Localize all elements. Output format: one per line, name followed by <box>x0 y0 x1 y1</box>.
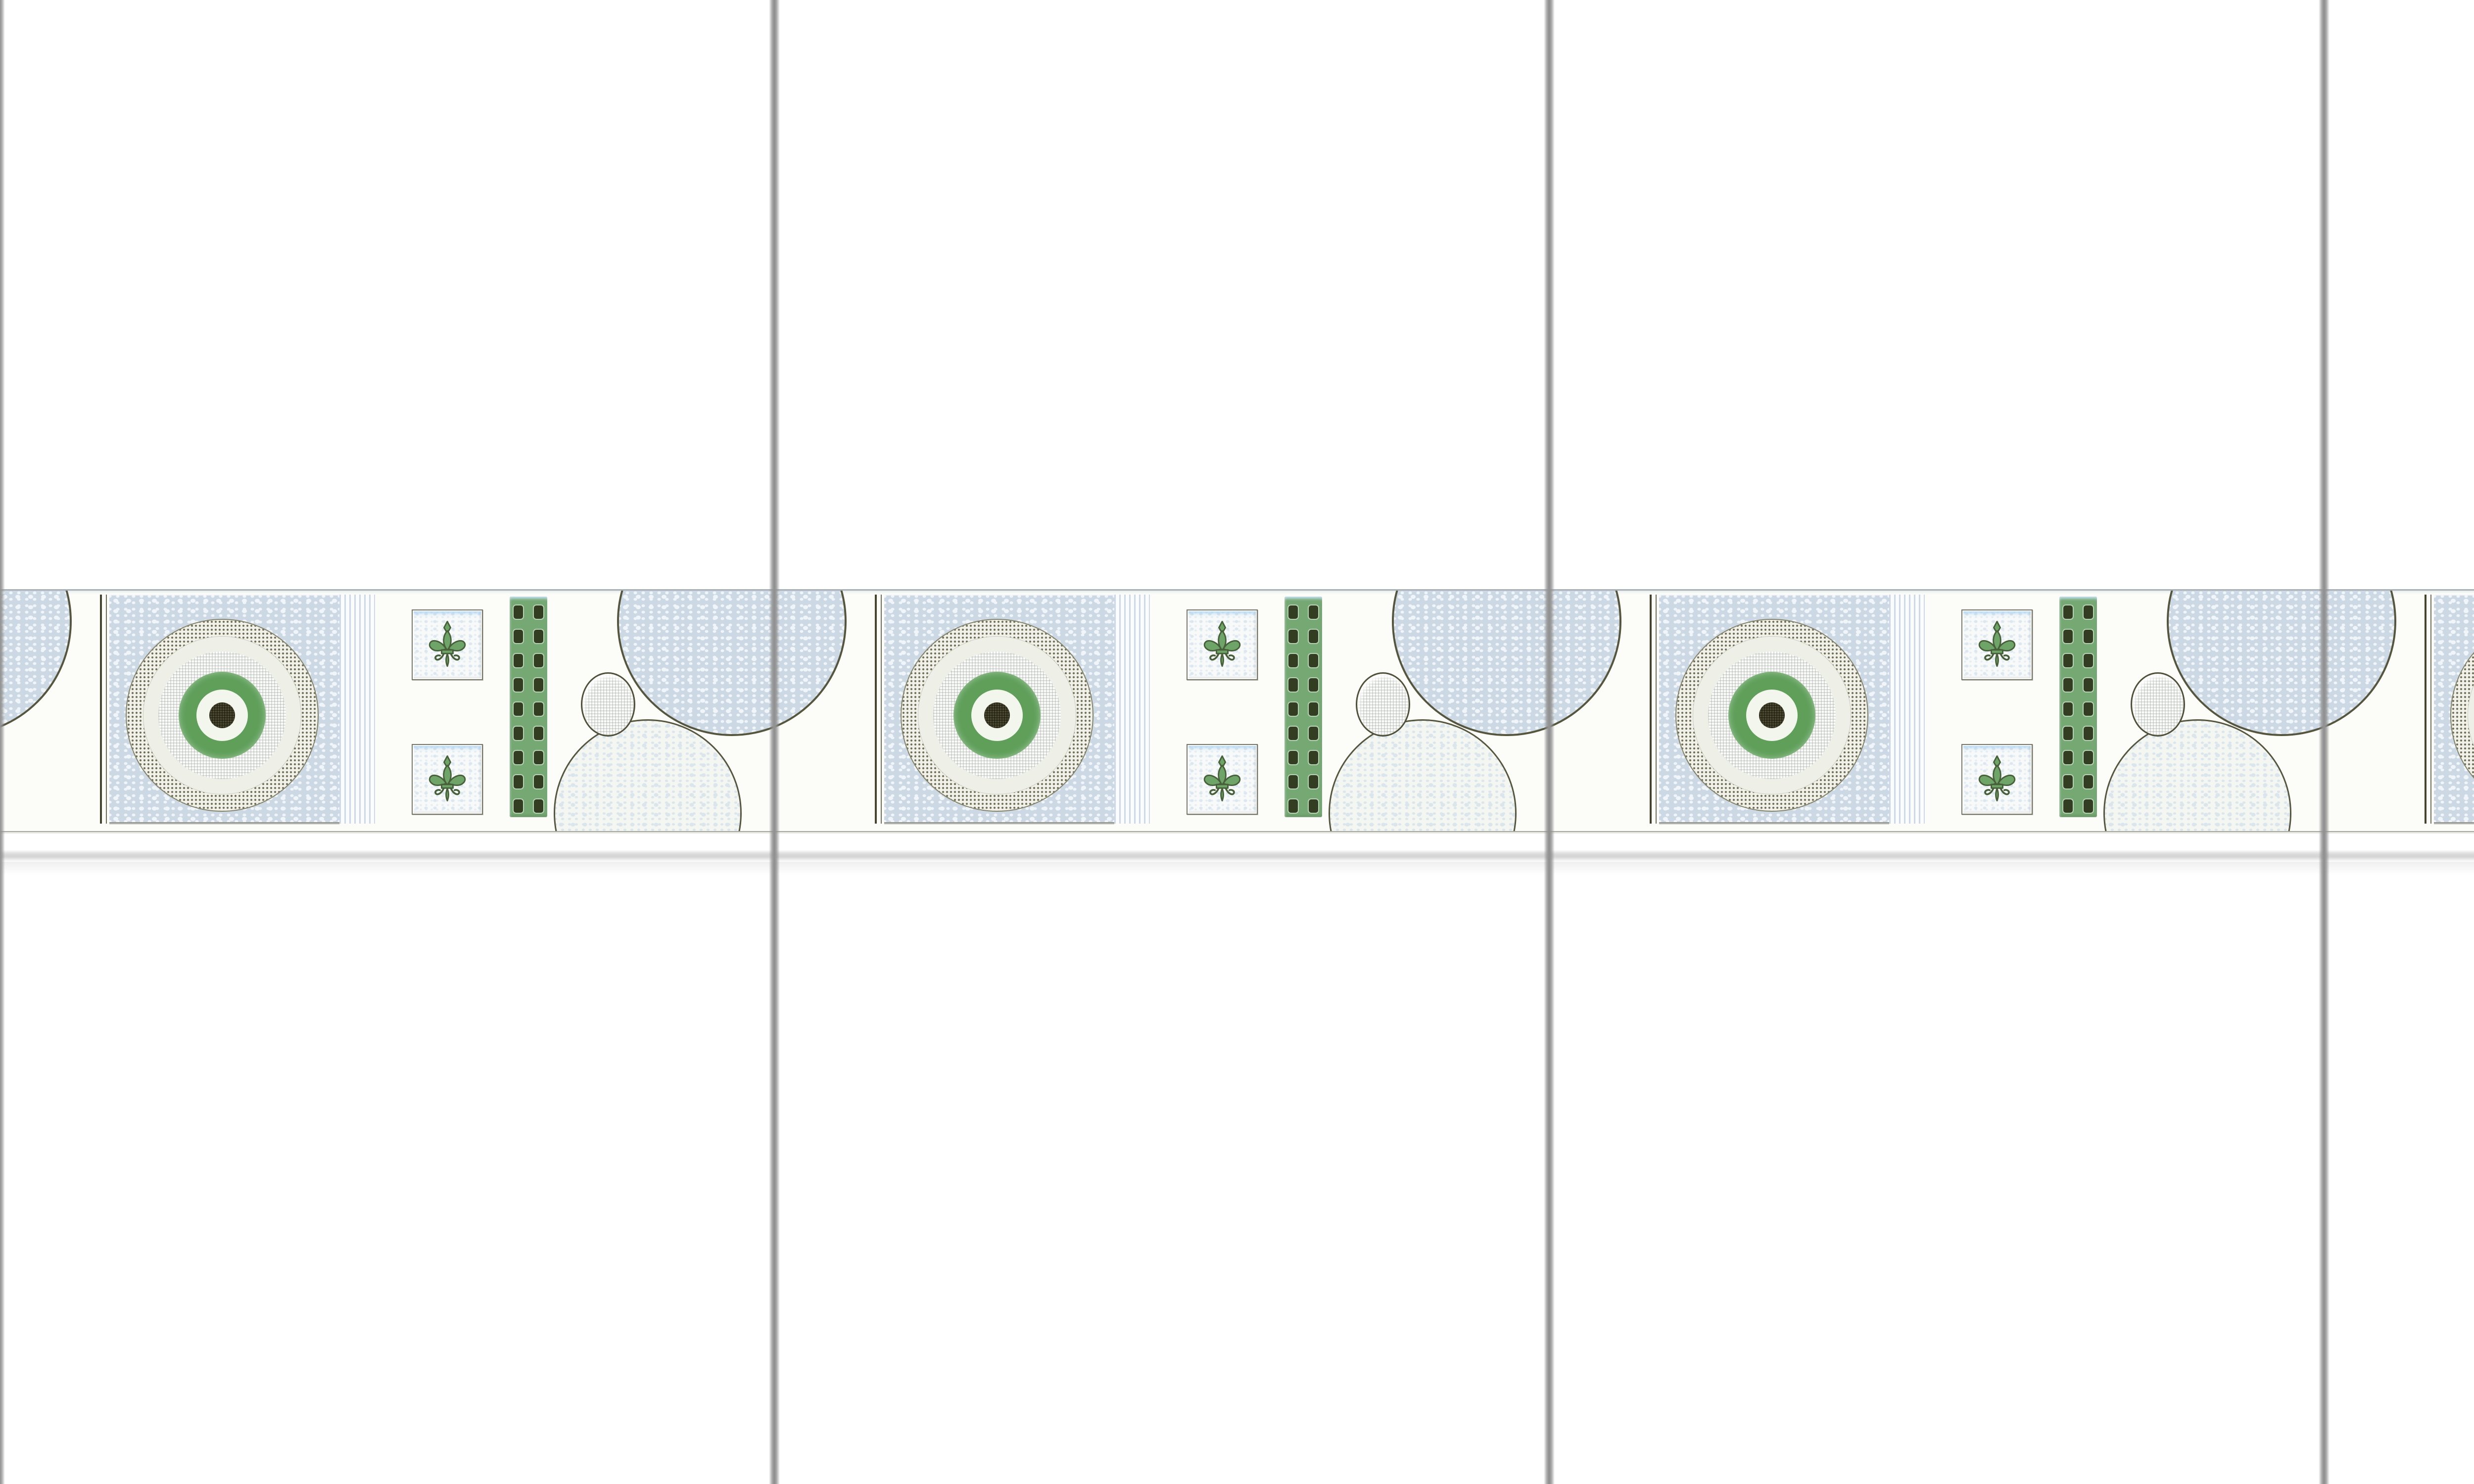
bar-dash <box>534 678 543 692</box>
big-blue-circle <box>2167 591 2324 736</box>
bar-dash <box>514 775 523 788</box>
pinstripe-block <box>1889 595 1925 824</box>
bar-dash <box>2063 799 2073 813</box>
bar-dash <box>1288 799 1298 813</box>
bar-dash <box>534 751 543 764</box>
double-pinline-light <box>2430 595 2431 824</box>
bar-dash <box>1288 702 1298 716</box>
grout-line-vertical <box>1544 0 1555 1484</box>
grout-line-vertical <box>2319 0 2330 1484</box>
bar-dash <box>534 654 543 667</box>
bar-dash <box>514 630 523 643</box>
fleur-de-lis-icon <box>427 755 468 804</box>
border-cell <box>774 591 1549 831</box>
fleur-de-lis-icon <box>1202 620 1242 670</box>
bar-dash <box>2063 678 2073 692</box>
double-pinline-dark <box>1650 595 1652 824</box>
fleur-tile <box>412 744 483 815</box>
blue-circle-sliver <box>774 591 847 736</box>
bar-dash <box>2063 654 2073 667</box>
bar-dash <box>1309 702 1318 716</box>
grout-line-vertical <box>0 0 5 1484</box>
white-texture-circle <box>554 719 742 831</box>
small-halftone-circle <box>2131 672 2185 737</box>
bar-dash <box>1309 727 1318 740</box>
border-cell <box>2324 591 2474 831</box>
grout-line-horizontal <box>0 850 2474 862</box>
bar-dash <box>2063 775 2073 788</box>
bar-dash <box>2063 605 2073 619</box>
bar-dash <box>2084 727 2093 740</box>
fleur-tile <box>1961 609 2033 680</box>
bar-dash <box>514 702 523 716</box>
bar-dash <box>2084 775 2093 788</box>
bar-dash <box>2063 702 2073 716</box>
fleur-de-lis-icon <box>1977 755 2017 804</box>
double-pinline-dark <box>875 595 877 824</box>
grout-line-vertical <box>769 0 780 1484</box>
fleur-de-lis-icon <box>1977 620 2017 670</box>
target-plate-motif <box>126 619 319 812</box>
target-plate-motif <box>901 619 1094 812</box>
fleur-de-lis-icon <box>427 620 468 670</box>
white-texture-circle <box>2103 719 2291 831</box>
bar-dash <box>2084 702 2093 716</box>
green-dash-bar <box>510 597 547 817</box>
bar-dash <box>534 727 543 740</box>
small-halftone-circle <box>1356 672 1410 737</box>
green-dash-bar <box>2059 597 2097 817</box>
double-pinline-light <box>1656 595 1657 824</box>
blue-circle-sliver <box>1549 591 1621 736</box>
white-texture-circle <box>1329 719 1517 831</box>
bar-dash <box>2084 605 2093 619</box>
bar-dash <box>2063 630 2073 643</box>
blue-circle-sliver <box>2324 591 2396 736</box>
bar-dash <box>514 654 523 667</box>
bar-dash <box>1288 727 1298 740</box>
fleur-tile <box>412 609 483 680</box>
bar-dash <box>1309 751 1318 764</box>
double-pinline-dark <box>2425 595 2426 824</box>
plate-center-dot <box>209 702 235 728</box>
bar-dash <box>1309 678 1318 692</box>
bar-dash <box>1309 799 1318 813</box>
bar-dash <box>1288 678 1298 692</box>
bar-dash <box>1309 775 1318 788</box>
small-halftone-circle <box>581 672 635 737</box>
border-cell <box>0 591 774 831</box>
bar-dash <box>1288 751 1298 764</box>
bar-dash <box>1288 654 1298 667</box>
bar-dash <box>514 605 523 619</box>
bar-dash <box>534 630 543 643</box>
bar-dash <box>2084 654 2093 667</box>
tiled-wall <box>0 0 2474 1484</box>
bar-dash <box>2084 630 2093 643</box>
pinstripe-block <box>1114 595 1150 824</box>
pinstripe-block <box>339 595 375 824</box>
bar-dash <box>534 799 543 813</box>
fleur-de-lis-icon <box>1202 755 1242 804</box>
target-plate-motif <box>2450 619 2474 812</box>
double-pinline-light <box>106 595 107 824</box>
bar-dash <box>514 678 523 692</box>
bar-dash <box>514 727 523 740</box>
bar-dash <box>514 751 523 764</box>
bar-dash <box>534 605 543 619</box>
bar-dash <box>514 799 523 813</box>
bar-dash <box>2063 727 2073 740</box>
bar-dash <box>1288 775 1298 788</box>
bar-dash <box>534 702 543 716</box>
bar-dash <box>1309 605 1318 619</box>
bar-dash <box>1309 630 1318 643</box>
bar-dash <box>534 775 543 788</box>
fleur-tile <box>1961 744 2033 815</box>
double-pinline-light <box>881 595 882 824</box>
bar-dash <box>2084 799 2093 813</box>
fleur-tile <box>1187 744 1258 815</box>
bar-dash <box>2084 751 2093 764</box>
big-blue-circle <box>617 591 774 736</box>
target-plate-motif <box>1675 619 1868 812</box>
fleur-tile <box>1187 609 1258 680</box>
plate-center-dot <box>1759 702 1785 728</box>
bar-dash <box>2084 678 2093 692</box>
big-blue-circle <box>1392 591 1549 736</box>
plate-center-dot <box>984 702 1010 728</box>
double-pinline-dark <box>100 595 102 824</box>
green-dash-bar <box>1285 597 1322 817</box>
bar-dash <box>2063 751 2073 764</box>
blue-circle-sliver <box>0 591 72 736</box>
bar-dash <box>1288 630 1298 643</box>
border-cell <box>1549 591 2324 831</box>
bar-dash <box>1309 654 1318 667</box>
bar-dash <box>1288 605 1298 619</box>
border-band <box>0 589 2474 832</box>
